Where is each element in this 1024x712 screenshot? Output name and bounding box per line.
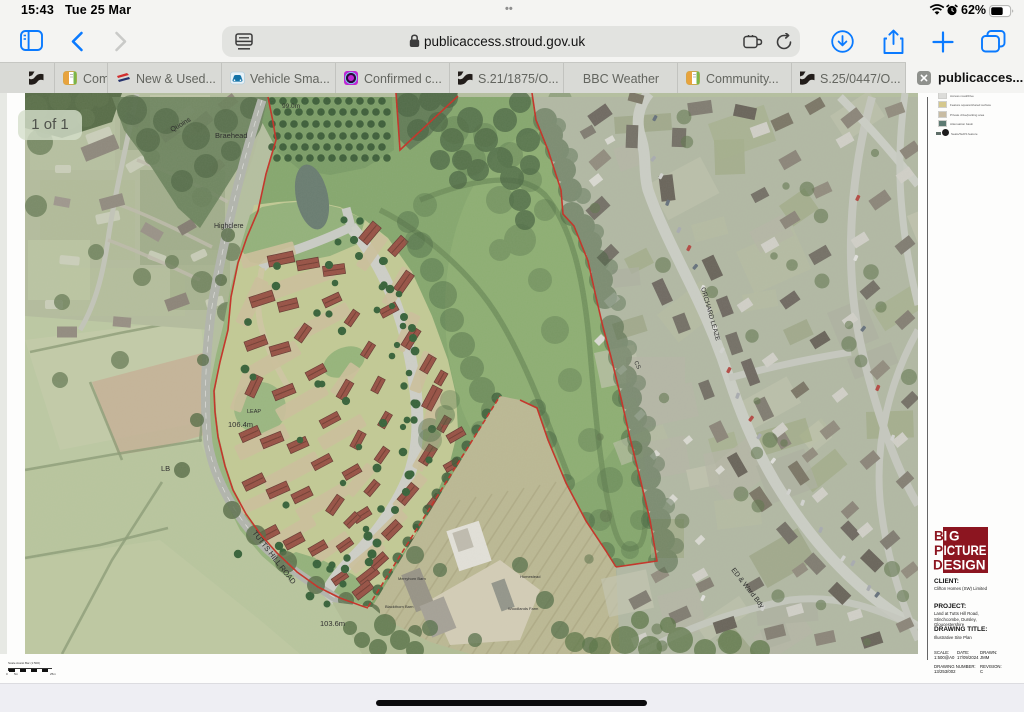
svg-text:ESIGN: ESIGN <box>944 558 986 573</box>
svg-text:IG: IG <box>944 529 960 544</box>
svg-text:P: P <box>934 543 943 558</box>
svg-text:ICTURE: ICTURE <box>944 543 987 558</box>
svg-text:D: D <box>933 558 943 573</box>
svg-text:B: B <box>934 529 944 544</box>
